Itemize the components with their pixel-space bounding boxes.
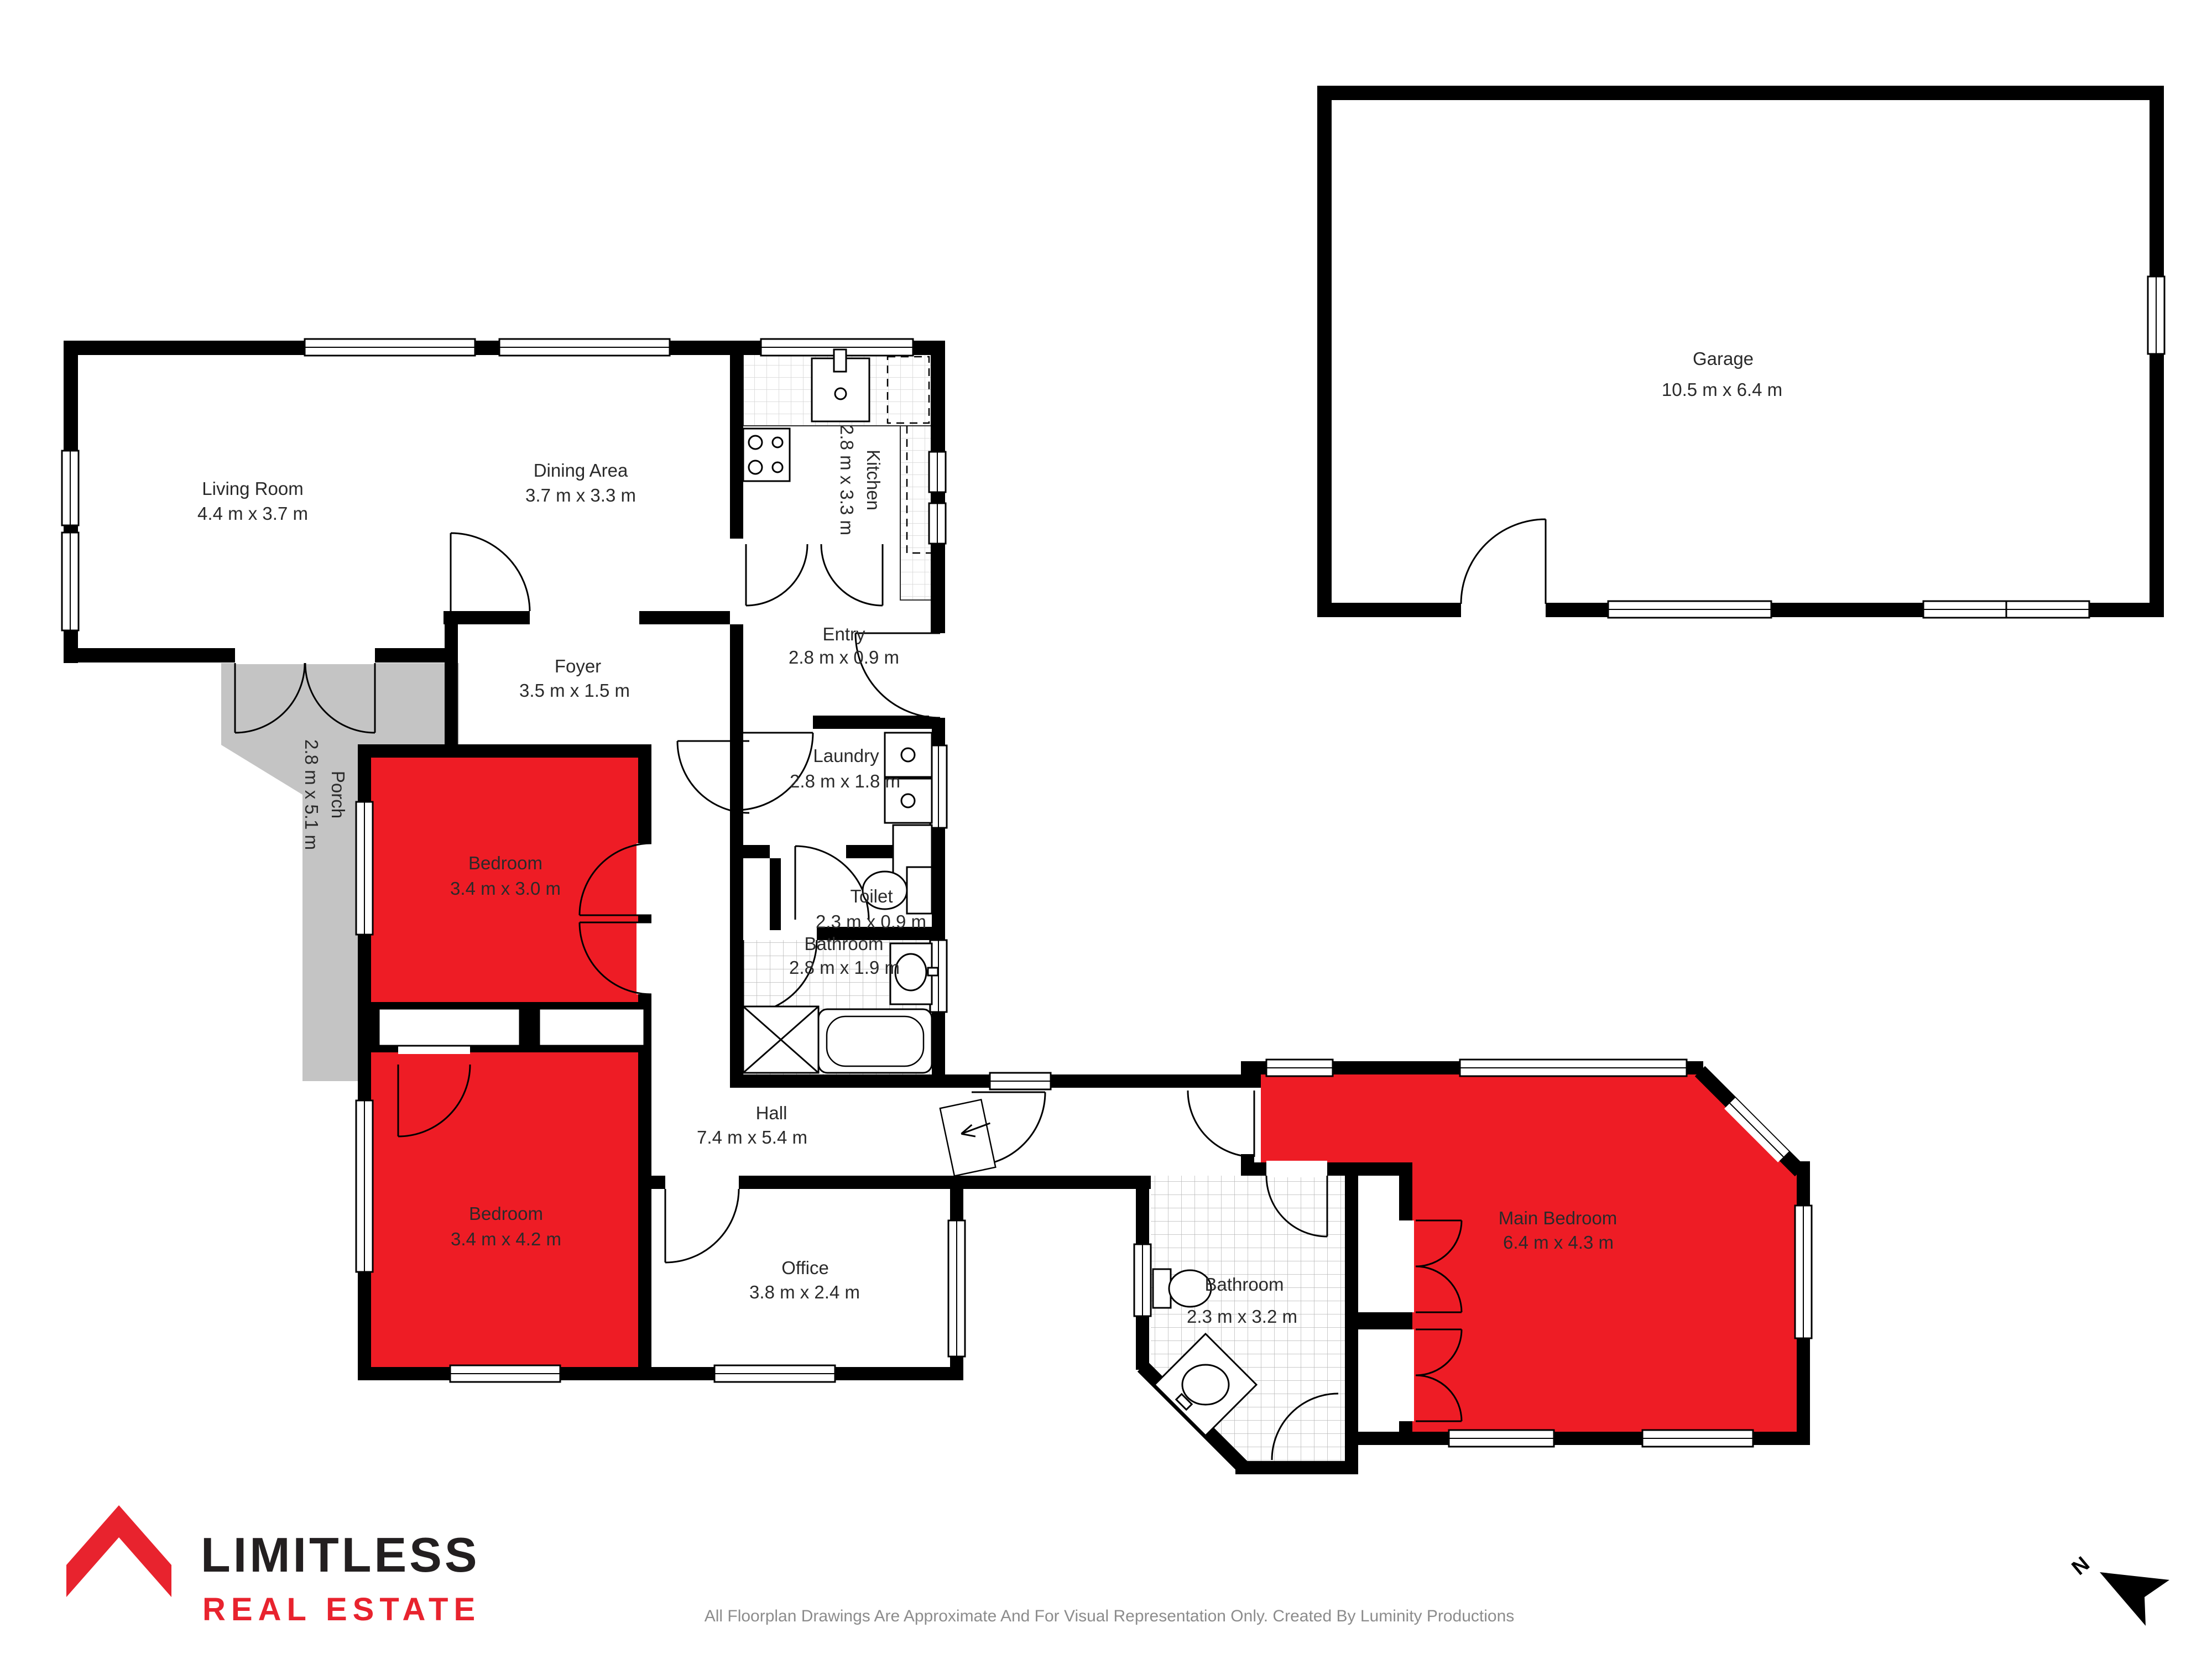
floorplan-page: Living Room 4.4 m x 3.7 m Dining Area 3.… (0, 0, 2212, 1659)
toilet-2-icon (1153, 1269, 1211, 1308)
room-dims-bathroom-1: 2.8 m x 1.9 m (789, 957, 900, 978)
room-label-bedroom-1: Bedroom (468, 853, 542, 873)
kitchen-counter-right (900, 426, 932, 600)
room-label-garage: Garage (1693, 348, 1754, 369)
room-dims-garage: 10.5 m x 6.4 m (1662, 379, 1782, 400)
room-dims-kitchen: 2.8 m x 3.3 m (837, 425, 857, 535)
room-dims-bathroom-2: 2.3 m x 3.2 m (1187, 1306, 1297, 1327)
disclaimer-text: All Floorplan Drawings Are Approximate A… (705, 1607, 1515, 1625)
room-dims-foyer: 3.5 m x 1.5 m (519, 680, 630, 701)
room-label-entry: Entry (822, 624, 865, 644)
room-dims-bedroom-2: 3.4 m x 4.2 m (451, 1229, 561, 1249)
stove-icon (743, 429, 790, 481)
room-label-main-bedroom: Main Bedroom (1499, 1208, 1618, 1228)
room-label-porch: Porch (328, 771, 348, 818)
bathtub-icon (818, 1009, 932, 1073)
kitchen-sink-icon (812, 349, 869, 421)
room-dims-laundry: 2.8 m x 1.8 m (790, 771, 900, 791)
room-dims-main-bedroom: 6.4 m x 4.3 m (1503, 1232, 1614, 1253)
footer: LIMITLESS REAL ESTATE All Floorplan Draw… (66, 1505, 2169, 1627)
room-label-bedroom-2: Bedroom (469, 1203, 543, 1224)
room-label-foyer: Foyer (555, 656, 601, 676)
room-dims-porch: 2.8 m x 5.1 m (301, 739, 322, 850)
room-label-kitchen: Kitchen (863, 450, 884, 510)
room-label-toilet: Toilet (850, 886, 893, 906)
room-dims-hall: 7.4 m x 5.4 m (697, 1127, 807, 1147)
room-dims-entry: 2.8 m x 0.9 m (789, 647, 899, 667)
room-dims-bedroom-1: 3.4 m x 3.0 m (450, 878, 561, 899)
shower-icon (743, 1006, 818, 1073)
north-arrow-icon: N (2068, 1552, 2169, 1626)
room-label-hall: Hall (756, 1103, 787, 1123)
room-label-living-room: Living Room (202, 478, 303, 499)
logo-chevron-icon (66, 1505, 171, 1597)
room-dims-office: 3.8 m x 2.4 m (749, 1282, 860, 1302)
room-label-dining-area: Dining Area (534, 460, 628, 481)
room-dims-toilet: 2.3 m x 0.9 m (816, 911, 926, 932)
room-label-office: Office (781, 1258, 829, 1278)
brand-subtitle: REAL ESTATE (202, 1592, 481, 1627)
washer-dryer-icons (885, 733, 932, 883)
step-arrow-icon (940, 1099, 995, 1176)
room-dims-dining-area: 3.7 m x 3.3 m (525, 485, 636, 505)
room-label-bathroom-2: Bathroom (1204, 1274, 1284, 1295)
room-dims-living-room: 4.4 m x 3.7 m (197, 503, 308, 524)
north-label: N (2068, 1552, 2094, 1580)
room-label-laundry: Laundry (813, 745, 879, 766)
brand-name: LIMITLESS (201, 1527, 480, 1582)
room-label-bathroom-1: Bathroom (804, 933, 883, 954)
floorplan-drawing: Living Room 4.4 m x 3.7 m Dining Area 3.… (0, 0, 2212, 1659)
